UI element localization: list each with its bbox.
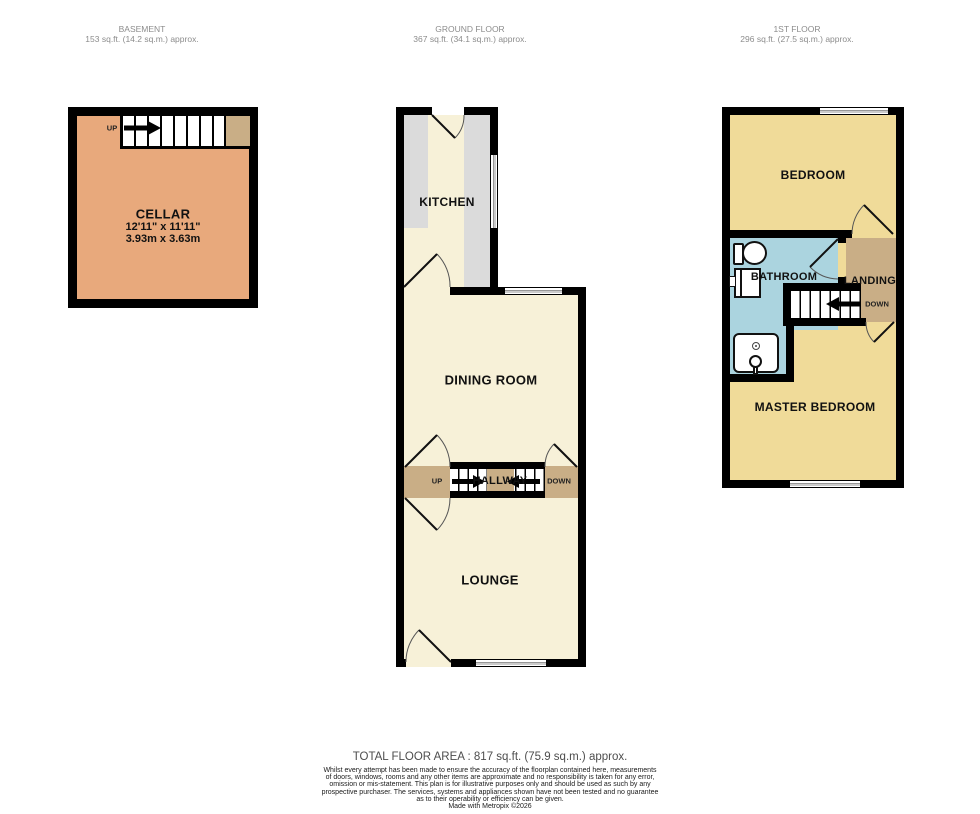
wall (490, 228, 498, 287)
disclaimer-line: of doors, windows, rooms and any other i… (0, 774, 980, 781)
dining-hall-door-left (405, 422, 451, 468)
toilet-bowl-icon (742, 241, 767, 265)
wall (722, 230, 852, 238)
disclaimer-line: omission or mis-statement. This plan is … (0, 781, 980, 788)
hallway-down-label: DOWN (547, 477, 571, 486)
basement-header: BASEMENT 153 sq.ft. (14.2 sq.m.) approx. (0, 24, 292, 44)
hallway-up-label: UP (432, 477, 442, 486)
wall (396, 659, 406, 667)
wall (838, 238, 846, 243)
master-bedroom-label: MASTER BEDROOM (755, 400, 876, 414)
kitchen-dining-door (404, 241, 451, 288)
first-down-label: DOWN (865, 300, 889, 309)
disclaimer-line: prospective purchaser. The services, sys… (0, 789, 980, 796)
lounge-exit-door (406, 617, 452, 663)
sink-divider (740, 270, 742, 296)
bedroom-label: BEDROOM (781, 168, 846, 182)
hallway-stair-wall-bottom (450, 491, 545, 498)
basement-up-label: UP (107, 124, 117, 133)
disclaimer: Whilst every attempt has been made to en… (0, 767, 980, 810)
tap-icon (729, 276, 736, 287)
disclaimer-line: as to their operability or efficiency ca… (0, 796, 980, 803)
first-title: 1ST FLOOR (647, 24, 947, 34)
cellar-label: CELLAR (136, 207, 191, 222)
bedroom-door (852, 193, 894, 235)
wall (546, 659, 586, 667)
bathroom-label: BATHROOM (751, 271, 817, 283)
ground-header: GROUND FLOOR 367 sq.ft. (34.1 sq.m.) app… (320, 24, 620, 44)
master-bedroom-door (866, 322, 895, 351)
dining-room-label: DINING ROOM (445, 373, 538, 388)
dining-window (505, 287, 562, 295)
wall (730, 374, 794, 382)
metropix-credit: Made with Metropix ©2026 (0, 803, 980, 810)
wall (396, 107, 404, 667)
kitchen-entry-door (432, 115, 465, 148)
kitchen-window (490, 155, 498, 228)
wall (450, 287, 490, 295)
first-floor-plan: DOWN BEDROOM BATHROOM (722, 107, 904, 488)
dining-hall-door-right (545, 435, 578, 468)
up-arrow-icon (124, 120, 162, 136)
basement-area: 153 sq.ft. (14.2 sq.m.) approx. (0, 34, 292, 44)
lounge-label: LOUNGE (461, 573, 518, 588)
floorplan-page: BASEMENT 153 sq.ft. (14.2 sq.m.) approx.… (0, 0, 980, 814)
cellar-dims-imperial: 12'11" x 11'11" (125, 221, 200, 233)
lounge-window (476, 659, 546, 667)
wall (578, 287, 586, 667)
wall (786, 318, 794, 382)
wall (490, 107, 498, 155)
disclaimer-line: Whilst every attempt has been made to en… (0, 767, 980, 774)
down-arrow-icon (826, 297, 860, 311)
kitchen-counter-left (404, 115, 428, 228)
basement-title: BASEMENT (0, 24, 292, 34)
bathtub-icon (733, 333, 779, 373)
stair-wall-bottom (783, 318, 866, 326)
ground-area: 367 sq.ft. (34.1 sq.m.) approx. (320, 34, 620, 44)
wall (451, 659, 476, 667)
first-area: 296 sq.ft. (27.5 sq.m.) approx. (647, 34, 947, 44)
ground-title: GROUND FLOOR (320, 24, 620, 34)
wall (490, 287, 505, 295)
bedroom-window (820, 107, 888, 115)
landing-label: LANDING (844, 275, 896, 287)
ground-floor-plan: KITCHEN DINING ROOM HALLWAY UP DOWN LOUN… (396, 107, 586, 668)
first-header: 1ST FLOOR 296 sq.ft. (27.5 sq.m.) approx… (647, 24, 947, 44)
hallway-stair-wall-top (450, 462, 545, 469)
stair-top-block (224, 116, 250, 146)
kitchen-label: KITCHEN (419, 195, 474, 209)
bathtub-drain-icon (752, 342, 760, 350)
cellar-dims-metric: 3.93m x 3.63m (126, 233, 201, 245)
total-floor-area: TOTAL FLOOR AREA : 817 sq.ft. (75.9 sq.m… (0, 751, 980, 763)
hall-lounge-door (405, 498, 451, 544)
bathtub-faucet-stem (753, 366, 758, 375)
hallway-label: HALLWAY (473, 475, 528, 487)
master-bedroom-window (790, 480, 860, 488)
basement-plan: UP CELLAR 12'11" x 11'11" 3.93m x 3.63m (68, 107, 258, 308)
